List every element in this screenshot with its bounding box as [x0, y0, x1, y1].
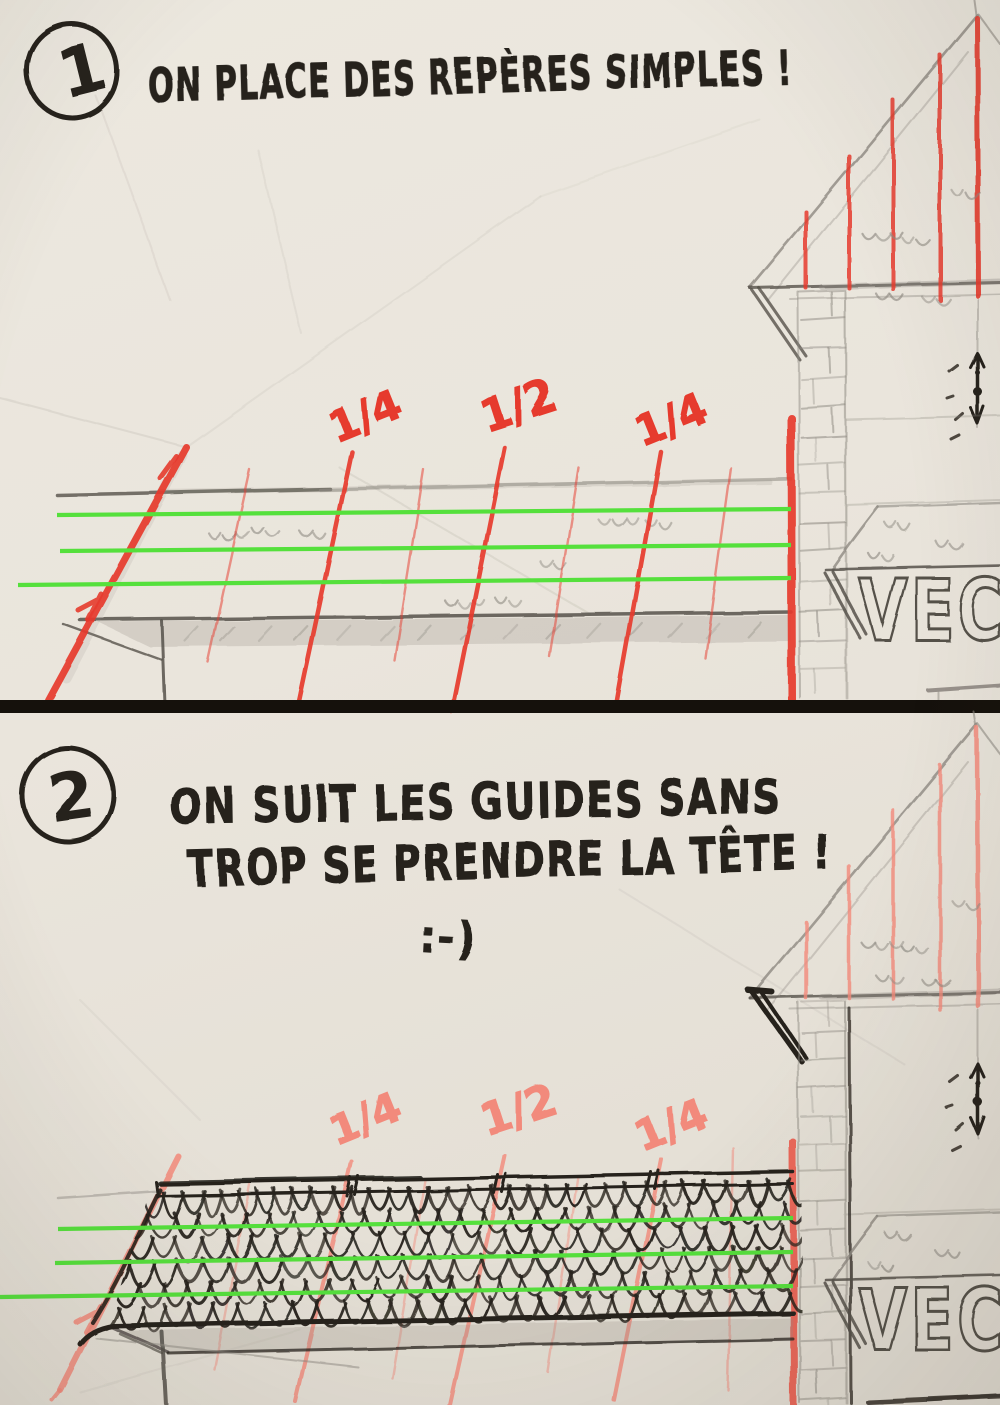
storefront-sign-2: VECO [858, 1270, 1000, 1370]
sketch-canvas: 1 ON PLACE DES REPÈRES SIMPLES ! [0, 0, 1000, 1405]
panel-2-title-line-1: ON SUIT LES GUIDES SANS [169, 768, 782, 836]
roof-right-edge-marker [791, 418, 792, 703]
sketch-sheet: 1 ON PLACE DES REPÈRES SIMPLES ! [0, 0, 1000, 1405]
storefront-sign-1: VECO [858, 560, 1000, 660]
panel-divider-bar [0, 700, 1000, 713]
smiley-annotation: :-) [417, 909, 478, 966]
